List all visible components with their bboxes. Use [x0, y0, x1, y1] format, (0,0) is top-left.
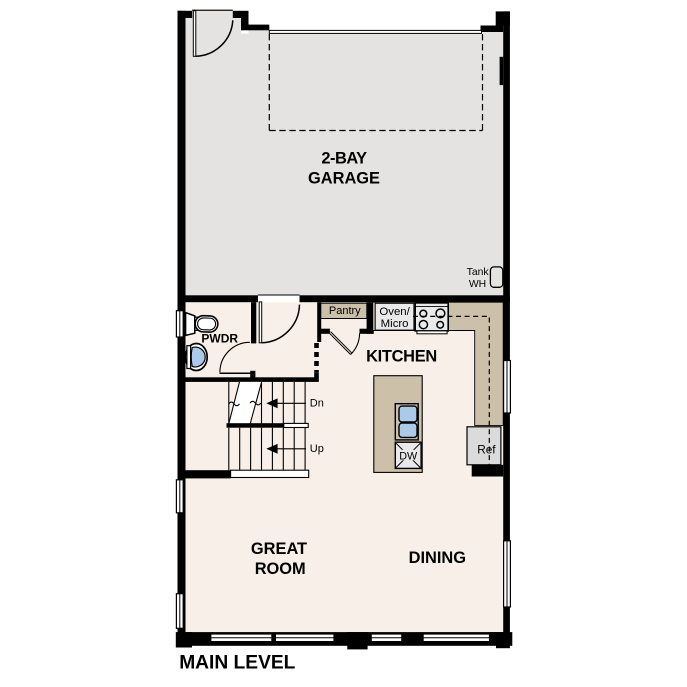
svg-text:WH: WH	[469, 279, 486, 290]
svg-text:Dn: Dn	[310, 397, 324, 409]
svg-text:PWDR: PWDR	[201, 331, 238, 345]
svg-text:DW: DW	[399, 450, 418, 462]
svg-text:KITCHEN: KITCHEN	[366, 348, 437, 366]
svg-text:GREAT: GREAT	[251, 540, 307, 558]
svg-text:Oven/: Oven/	[379, 306, 410, 318]
svg-text:Pantry: Pantry	[329, 305, 361, 317]
svg-text:DINING: DINING	[409, 549, 466, 567]
svg-text:Ref: Ref	[477, 442, 496, 456]
svg-text:ROOM: ROOM	[255, 560, 306, 578]
svg-text:Micro: Micro	[381, 318, 409, 330]
svg-text:GARAGE: GARAGE	[308, 170, 380, 188]
svg-text:Up: Up	[310, 443, 324, 455]
svg-text:MAIN LEVEL: MAIN LEVEL	[179, 652, 295, 673]
svg-text:2-BAY: 2-BAY	[321, 150, 367, 168]
svg-text:Tank: Tank	[467, 267, 490, 278]
